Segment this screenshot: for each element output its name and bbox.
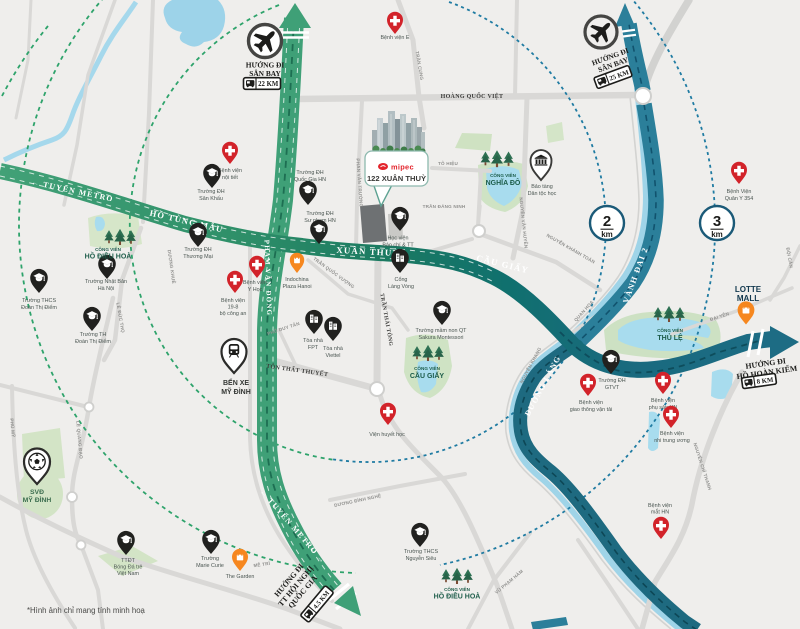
svg-text:Plaza Hanoi: Plaza Hanoi <box>282 284 311 290</box>
svg-text:CÔNG VIÊN: CÔNG VIÊN <box>444 585 470 592</box>
svg-text:Trường ĐH: Trường ĐH <box>184 247 211 253</box>
svg-text:Báo chí & TT: Báo chí & TT <box>382 243 414 249</box>
svg-text:SÂN BAY: SÂN BAY <box>249 68 281 78</box>
svg-text:TTĐT: TTĐT <box>121 558 135 564</box>
svg-text:Trường Nhật Bản: Trường Nhật Bản <box>85 279 127 285</box>
svg-text:Bệnh viện: Bệnh viện <box>579 400 603 406</box>
svg-text:Tòa nhà: Tòa nhà <box>323 346 343 352</box>
svg-text:3: 3 <box>713 213 721 230</box>
svg-text:Trường TH: Trường TH <box>80 332 107 338</box>
svg-text:Bệnh Viện: Bệnh Viện <box>727 189 752 195</box>
svg-text:Bóng Đá trẻ: Bóng Đá trẻ <box>114 565 143 571</box>
svg-text:Sakura Montessori: Sakura Montessori <box>419 335 464 341</box>
svg-text:Bệnh viện: Bệnh viện <box>218 168 242 174</box>
svg-text:CÔNG VIÊN: CÔNG VIÊN <box>490 171 516 178</box>
svg-text:Hà Nội: Hà Nội <box>98 286 114 292</box>
svg-text:Trường: Trường <box>201 556 219 562</box>
svg-text:FPT: FPT <box>308 345 319 351</box>
svg-text:nội tiết: nội tiết <box>222 175 238 181</box>
svg-text:TÔ HIỆU: TÔ HIỆU <box>438 159 459 166</box>
svg-text:Trường THCS: Trường THCS <box>404 549 439 555</box>
svg-text:Làng Vòng: Làng Vòng <box>388 284 414 290</box>
svg-text:giao thông vận tải: giao thông vận tải <box>570 407 613 413</box>
svg-text:TRẦN ĐĂNG NINH: TRẦN ĐĂNG NINH <box>423 203 466 209</box>
svg-text:mắt HN: mắt HN <box>651 509 669 516</box>
svg-text:The Garden: The Garden <box>226 574 255 580</box>
svg-text:bộ công an: bộ công an <box>220 311 247 317</box>
svg-text:Thương Mại: Thương Mại <box>183 254 213 260</box>
svg-text:Đoàn Thị Điểm: Đoàn Thị Điểm <box>21 304 57 311</box>
svg-text:Trường THCS: Trường THCS <box>22 298 57 304</box>
svg-text:MỸ ĐÌNH: MỸ ĐÌNH <box>23 495 52 504</box>
svg-text:CÔNG VIÊN: CÔNG VIÊN <box>414 364 440 371</box>
svg-text:CÔNG VIÊN: CÔNG VIÊN <box>657 326 683 333</box>
svg-text:Trường mầm non QT: Trường mầm non QT <box>416 328 468 334</box>
svg-text:nhi trung ương: nhi trung ương <box>654 438 690 444</box>
svg-text:Học viện: Học viện <box>388 236 409 242</box>
svg-text:GTVT: GTVT <box>605 385 620 391</box>
svg-text:mipec: mipec <box>391 163 414 172</box>
svg-text:22 KM: 22 KM <box>258 81 279 88</box>
svg-text:Bệnh viện: Bệnh viện <box>243 280 267 286</box>
svg-text:Viện huyết học: Viện huyết học <box>369 432 405 438</box>
svg-text:NGHĨA ĐÔ: NGHĨA ĐÔ <box>486 178 521 187</box>
svg-text:Bệnh viện E: Bệnh viện E <box>380 35 409 41</box>
svg-text:Trường ĐH: Trường ĐH <box>598 378 625 384</box>
svg-text:SVĐ: SVĐ <box>30 489 44 496</box>
svg-text:Cổng: Cổng <box>395 276 408 283</box>
svg-text:*Hình ảnh chỉ mang tính minh h: *Hình ảnh chỉ mang tính minh hoạ <box>27 606 146 615</box>
svg-text:CÔNG VIÊN: CÔNG VIÊN <box>95 245 121 252</box>
svg-text:THỦ LỆ: THỦ LỆ <box>657 333 683 342</box>
svg-text:Bảo tàng: Bảo tàng <box>531 184 553 190</box>
svg-text:MỸ ĐÌNH: MỸ ĐÌNH <box>221 387 251 396</box>
svg-text:Viettel: Viettel <box>326 353 341 359</box>
svg-text:Bệnh viện: Bệnh viện <box>221 298 245 304</box>
svg-text:km: km <box>711 230 723 239</box>
svg-text:122 XUÂN THUỲ: 122 XUÂN THUỲ <box>367 174 426 183</box>
svg-text:LOTTE: LOTTE <box>735 285 762 294</box>
svg-text:Y Học: Y Học <box>248 287 263 293</box>
svg-text:Việt Nam: Việt Nam <box>117 571 140 577</box>
svg-text:Đoàn Thị Điểm: Đoàn Thị Điểm <box>75 338 111 345</box>
svg-text:Dân tộc học: Dân tộc học <box>528 191 557 197</box>
svg-text:Tòa nhà: Tòa nhà <box>303 338 323 344</box>
svg-text:Trường ĐH: Trường ĐH <box>197 189 224 195</box>
svg-text:Indochina: Indochina <box>285 277 308 283</box>
svg-text:Bệnh viện: Bệnh viện <box>660 431 684 437</box>
svg-text:Quân Y 354: Quân Y 354 <box>725 196 754 202</box>
svg-text:Trường ĐH: Trường ĐH <box>296 170 323 176</box>
svg-text:Sân Khấu: Sân Khấu <box>199 196 223 202</box>
svg-text:Nguyễn Siêu: Nguyễn Siêu <box>406 555 437 562</box>
svg-text:19-8: 19-8 <box>228 305 239 311</box>
svg-text:HƯỚNG ĐI: HƯỚNG ĐI <box>246 60 285 70</box>
svg-text:Trường ĐH: Trường ĐH <box>306 211 333 217</box>
svg-text:MALL: MALL <box>737 294 759 303</box>
svg-text:km: km <box>601 230 613 239</box>
svg-text:2: 2 <box>603 213 611 230</box>
svg-text:Bệnh viện: Bệnh viện <box>651 398 675 404</box>
svg-text:Bệnh viện: Bệnh viện <box>648 503 672 509</box>
svg-text:Marie Curie: Marie Curie <box>196 563 224 569</box>
svg-text:HOÀNG QUỐC VIỆT: HOÀNG QUỐC VIỆT <box>441 92 504 100</box>
